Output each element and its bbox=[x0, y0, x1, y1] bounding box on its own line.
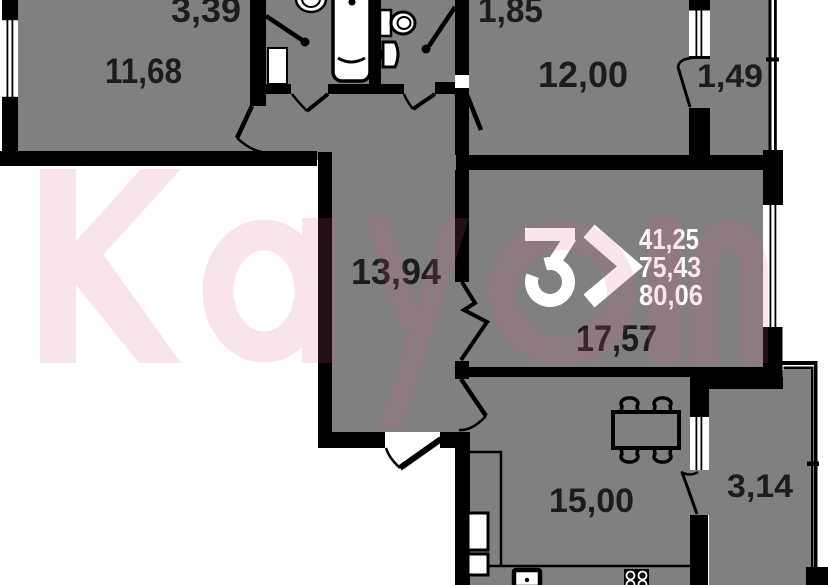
svg-text:12,00: 12,00 bbox=[538, 54, 628, 95]
svg-text:15,00: 15,00 bbox=[549, 482, 634, 520]
svg-text:3,14: 3,14 bbox=[727, 468, 793, 504]
svg-text:1,85: 1,85 bbox=[478, 0, 543, 30]
svg-text:11,68: 11,68 bbox=[105, 52, 182, 91]
svg-text:1,49: 1,49 bbox=[697, 58, 763, 94]
svg-text:3,39: 3,39 bbox=[171, 0, 241, 30]
